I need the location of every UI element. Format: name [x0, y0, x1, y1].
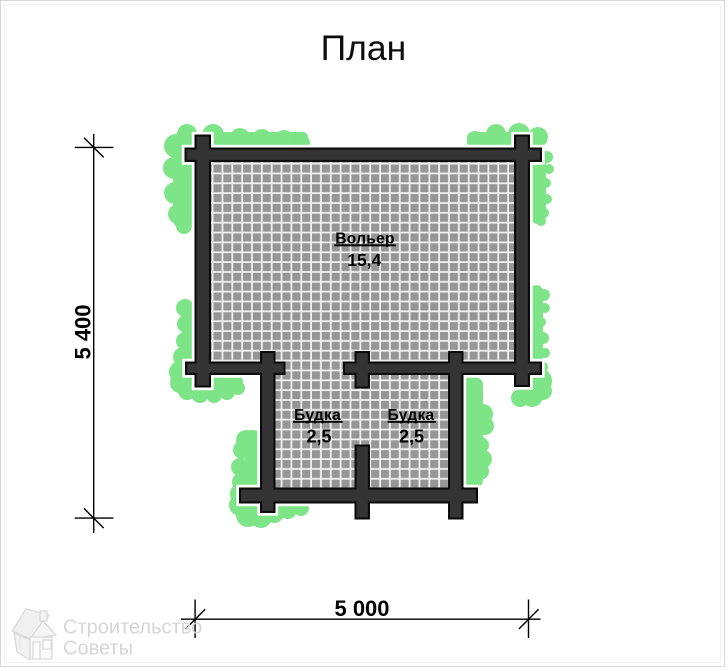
- svg-text:2,5: 2,5: [399, 427, 424, 447]
- svg-text:5 400: 5 400: [71, 304, 96, 359]
- svg-text:План: План: [321, 28, 407, 68]
- svg-text:Строительство: Строительство: [63, 617, 202, 639]
- svg-text:5 000: 5 000: [334, 596, 389, 621]
- svg-text:Советы: Советы: [63, 638, 133, 660]
- svg-text:2,5: 2,5: [306, 427, 331, 447]
- svg-text:15,4: 15,4: [347, 250, 381, 270]
